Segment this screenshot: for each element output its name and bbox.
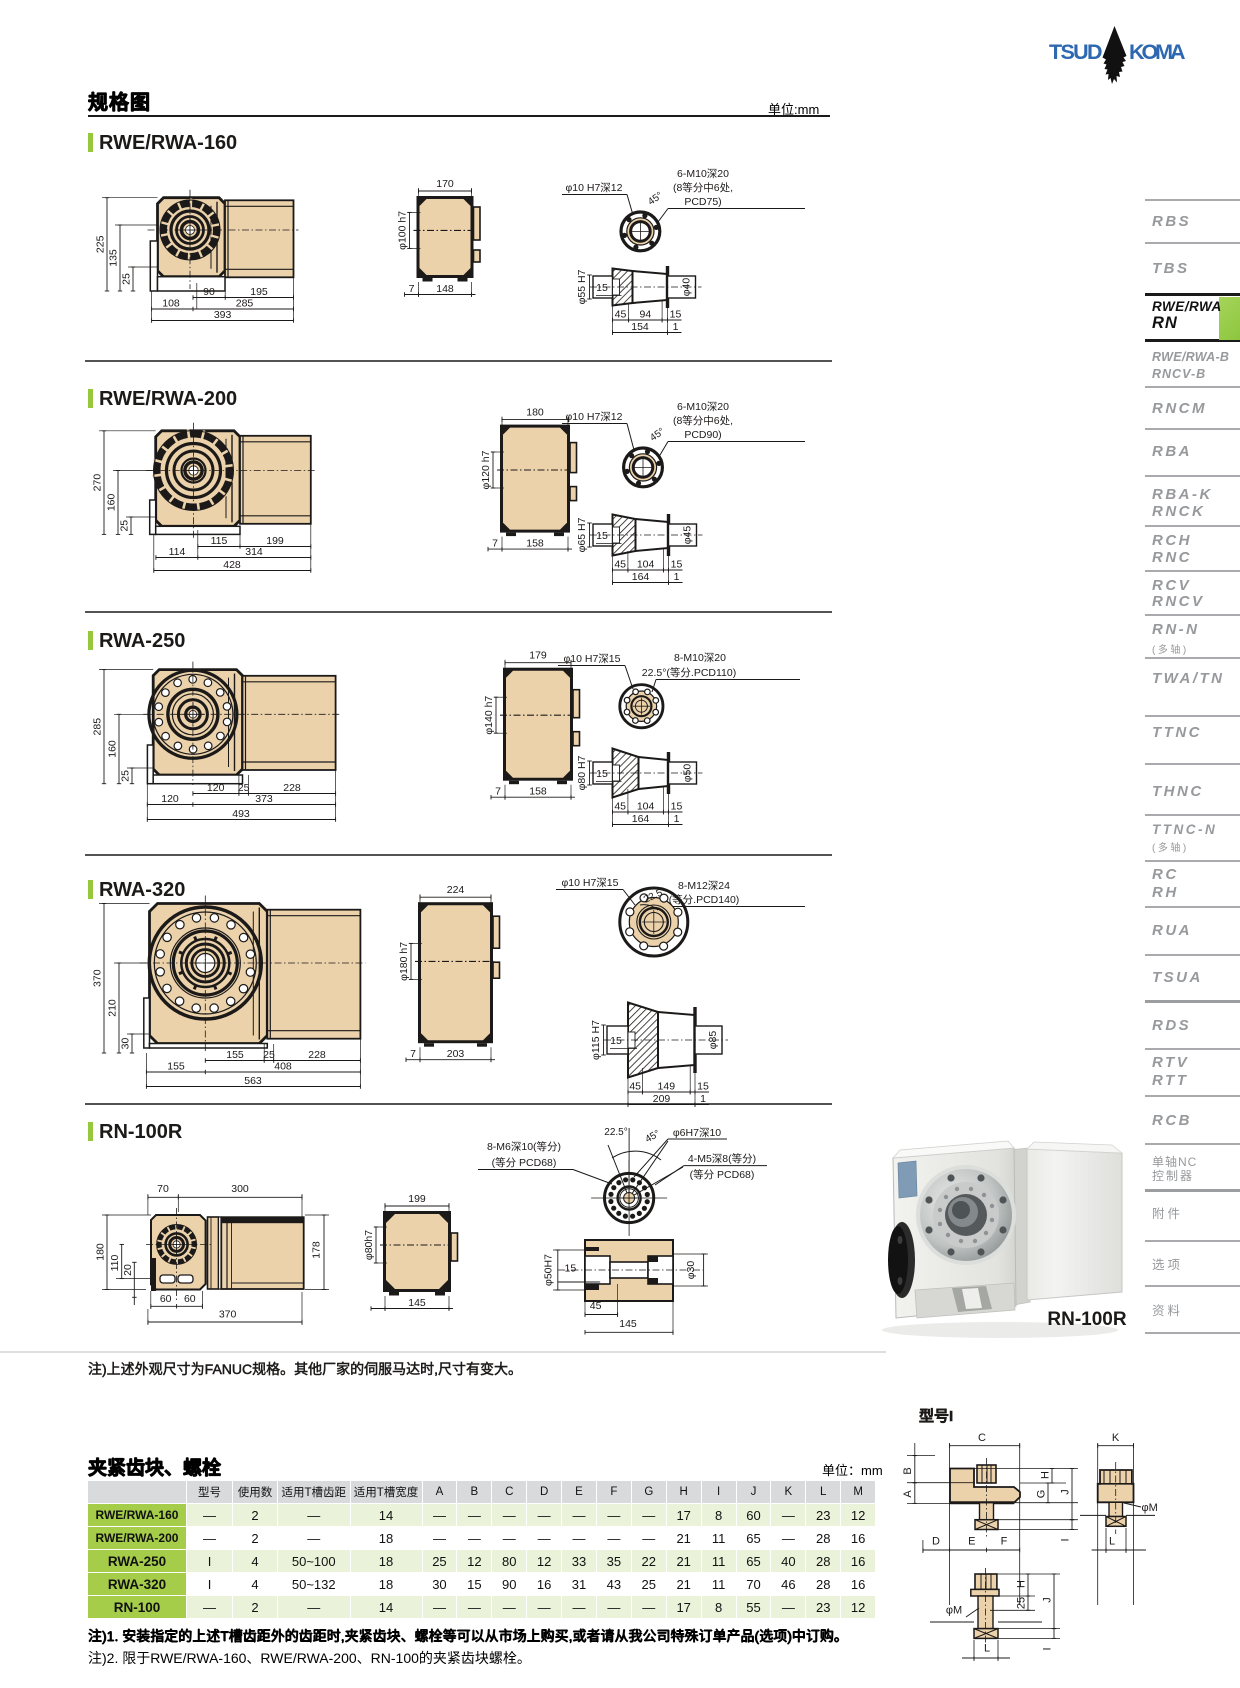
- svg-text:RN-100R: RN-100R: [99, 1121, 183, 1143]
- svg-text:RWE/RWA-160: RWE/RWA-160: [99, 132, 237, 154]
- svg-text:φ80h7: φ80h7: [363, 1230, 375, 1260]
- svg-text:E: E: [968, 1536, 975, 1548]
- svg-text:179: 179: [529, 650, 547, 662]
- svg-text:15: 15: [565, 1263, 577, 1275]
- svg-text:φ50: φ50: [682, 764, 694, 783]
- svg-text:370: 370: [92, 969, 104, 987]
- svg-text:J: J: [1042, 1597, 1054, 1603]
- svg-text:25: 25: [119, 520, 131, 532]
- svg-text:PCD75): PCD75): [684, 196, 721, 208]
- svg-text:15: 15: [596, 768, 608, 780]
- svg-text:(8等分中6处,: (8等分中6处,: [673, 414, 733, 427]
- svg-text:L: L: [984, 1642, 990, 1654]
- svg-text:φ45: φ45: [682, 526, 694, 545]
- svg-text:408: 408: [274, 1061, 292, 1073]
- svg-text:15: 15: [671, 559, 683, 571]
- svg-text:φ65 H7: φ65 H7: [576, 517, 588, 552]
- svg-text:1: 1: [673, 321, 679, 333]
- svg-text:PCD90): PCD90): [684, 429, 721, 441]
- svg-text:370: 370: [219, 1309, 237, 1321]
- svg-text:164: 164: [632, 813, 650, 825]
- svg-text:393: 393: [214, 309, 232, 321]
- svg-text:φ55 H7: φ55 H7: [576, 269, 588, 304]
- svg-text:45°: 45°: [646, 190, 665, 208]
- svg-text:7: 7: [409, 283, 415, 295]
- svg-text:RWA-250: RWA-250: [99, 630, 185, 652]
- svg-text:108: 108: [162, 298, 180, 310]
- svg-text:φ10 H7深12: φ10 H7深12: [565, 182, 622, 194]
- svg-text:25: 25: [238, 782, 250, 794]
- svg-text:H: H: [1040, 1471, 1052, 1479]
- svg-text:149: 149: [658, 1081, 676, 1093]
- svg-text:25: 25: [263, 1049, 275, 1061]
- svg-text:70: 70: [157, 1183, 169, 1195]
- svg-text:7: 7: [495, 786, 501, 798]
- svg-text:45: 45: [629, 1081, 641, 1093]
- svg-text:7: 7: [492, 538, 498, 550]
- svg-text:φ100 h7: φ100 h7: [397, 211, 409, 250]
- svg-text:B: B: [902, 1467, 914, 1474]
- svg-text:135: 135: [108, 249, 120, 267]
- svg-text:22.5°: 22.5°: [604, 1127, 627, 1138]
- svg-text:195: 195: [250, 286, 268, 298]
- svg-text:199: 199: [266, 535, 284, 547]
- svg-text:15: 15: [671, 801, 683, 813]
- svg-text:60: 60: [160, 1293, 172, 1305]
- svg-text:G: G: [1036, 1490, 1048, 1499]
- svg-text:199: 199: [408, 1193, 426, 1205]
- svg-text:285: 285: [92, 718, 104, 736]
- svg-text:φ120 h7: φ120 h7: [480, 450, 492, 489]
- svg-text:148: 148: [436, 283, 454, 295]
- svg-text:104: 104: [637, 559, 655, 571]
- svg-text:45: 45: [590, 1300, 602, 1312]
- svg-text:228: 228: [308, 1049, 326, 1061]
- svg-text:6-M10深20: 6-M10深20: [677, 401, 729, 413]
- svg-text:8-M6深10(等分): 8-M6深10(等分): [487, 1140, 561, 1153]
- svg-text:203: 203: [447, 1048, 465, 1060]
- svg-text:I: I: [1060, 1538, 1072, 1541]
- svg-text:228: 228: [283, 782, 301, 794]
- svg-text:300: 300: [231, 1183, 249, 1195]
- svg-text:180: 180: [526, 407, 544, 419]
- svg-text:160: 160: [106, 493, 118, 511]
- svg-text:K: K: [1112, 1432, 1120, 1444]
- svg-text:(等分 PCD68): (等分 PCD68): [690, 1168, 755, 1181]
- svg-text:I: I: [1042, 1647, 1054, 1650]
- svg-text:25: 25: [121, 273, 133, 285]
- svg-text:1: 1: [674, 571, 680, 583]
- svg-text:RN-100R: RN-100R: [1047, 1309, 1126, 1330]
- svg-text:F: F: [1001, 1536, 1008, 1548]
- svg-text:φ10 H7深15: φ10 H7深15: [561, 877, 618, 889]
- svg-text:4-M5深8(等分): 4-M5深8(等分): [688, 1152, 756, 1165]
- svg-text:178: 178: [311, 1241, 323, 1259]
- svg-text:493: 493: [232, 808, 250, 820]
- svg-text:6-M10深20: 6-M10深20: [677, 168, 729, 180]
- svg-text:φ140 h7: φ140 h7: [483, 696, 495, 735]
- svg-text:115: 115: [211, 535, 228, 547]
- svg-text:D: D: [932, 1536, 940, 1548]
- svg-text:145: 145: [408, 1297, 426, 1309]
- svg-text:154: 154: [631, 321, 649, 333]
- svg-text:φM: φM: [946, 1605, 962, 1617]
- svg-text:30: 30: [120, 1038, 132, 1050]
- svg-text:注)上述外观尺寸为FANUC规格。其他厂家的伺服马达时,尺寸: 注)上述外观尺寸为FANUC规格。其他厂家的伺服马达时,尺寸有变大。: [88, 1361, 522, 1377]
- svg-text:φ80 H7: φ80 H7: [576, 755, 588, 790]
- svg-text:155: 155: [167, 1061, 185, 1073]
- svg-text:15: 15: [610, 1035, 622, 1047]
- svg-text:7: 7: [410, 1048, 416, 1060]
- svg-text:H: H: [1016, 1580, 1028, 1588]
- svg-text:L: L: [1109, 1536, 1115, 1548]
- svg-text:285: 285: [236, 298, 254, 310]
- svg-text:φ6H7深10: φ6H7深10: [673, 1127, 721, 1139]
- svg-text:155: 155: [226, 1049, 244, 1061]
- svg-text:(等分 PCD68): (等分 PCD68): [492, 1156, 557, 1169]
- svg-text:270: 270: [92, 474, 104, 492]
- svg-text:15: 15: [670, 309, 682, 321]
- svg-text:C: C: [978, 1432, 986, 1444]
- svg-text:104: 104: [637, 801, 655, 813]
- svg-text:114: 114: [169, 546, 186, 558]
- svg-text:22.5°(等分.PCD110): 22.5°(等分.PCD110): [642, 666, 736, 679]
- svg-text:120: 120: [161, 793, 179, 805]
- svg-text:428: 428: [223, 559, 241, 571]
- svg-text:1: 1: [674, 813, 680, 825]
- svg-text:373: 373: [255, 793, 273, 805]
- svg-text:160: 160: [107, 740, 119, 758]
- svg-text:90: 90: [203, 286, 215, 298]
- svg-text:164: 164: [632, 571, 650, 583]
- svg-text:45: 45: [614, 559, 626, 571]
- svg-text:170: 170: [436, 178, 454, 190]
- svg-text:型号I: 型号I: [919, 1407, 953, 1425]
- svg-text:314: 314: [245, 546, 263, 558]
- svg-text:224: 224: [447, 884, 465, 896]
- svg-text:563: 563: [244, 1075, 262, 1087]
- svg-text:25: 25: [120, 770, 132, 782]
- svg-text:φ50H7: φ50H7: [543, 1254, 555, 1286]
- svg-text:φ10 H7深12: φ10 H7深12: [565, 411, 622, 423]
- svg-text:60: 60: [184, 1293, 196, 1305]
- svg-text:φ115 H7: φ115 H7: [590, 1020, 602, 1060]
- svg-text:15: 15: [596, 530, 608, 542]
- svg-text:A: A: [902, 1490, 914, 1498]
- svg-text:φ180 h7: φ180 h7: [398, 942, 410, 981]
- svg-text:(8等分中6处,: (8等分中6处,: [673, 181, 733, 194]
- svg-text:J: J: [1060, 1489, 1072, 1495]
- svg-text:210: 210: [107, 999, 119, 1017]
- svg-text:145: 145: [619, 1318, 637, 1330]
- svg-text:180: 180: [95, 1243, 107, 1261]
- svg-text:8-M12深24: 8-M12深24: [678, 880, 730, 892]
- svg-text:120: 120: [207, 782, 225, 794]
- svg-text:110: 110: [109, 1254, 121, 1271]
- svg-text:25: 25: [1016, 1597, 1028, 1609]
- svg-text:φ30: φ30: [685, 1261, 697, 1280]
- svg-text:94: 94: [640, 309, 652, 321]
- svg-text:45: 45: [614, 801, 626, 813]
- svg-text:RWE/RWA-200: RWE/RWA-200: [99, 388, 237, 410]
- svg-text:225: 225: [95, 235, 107, 253]
- svg-text:8-M10深20: 8-M10深20: [674, 652, 726, 664]
- svg-text:158: 158: [526, 538, 544, 550]
- svg-text:45°: 45°: [648, 426, 667, 444]
- svg-text:φ10 H7深15: φ10 H7深15: [563, 653, 620, 665]
- svg-text:φ40: φ40: [681, 278, 693, 297]
- svg-text:45: 45: [615, 309, 627, 321]
- svg-text:45°: 45°: [643, 1128, 662, 1145]
- svg-text:RWA-320: RWA-320: [99, 879, 185, 901]
- svg-text:φ85: φ85: [707, 1031, 719, 1050]
- svg-text:φM: φM: [1142, 1502, 1158, 1514]
- svg-text:158: 158: [529, 786, 547, 798]
- svg-text:15: 15: [596, 282, 608, 294]
- svg-text:15: 15: [697, 1081, 709, 1093]
- svg-text:20: 20: [122, 1264, 134, 1276]
